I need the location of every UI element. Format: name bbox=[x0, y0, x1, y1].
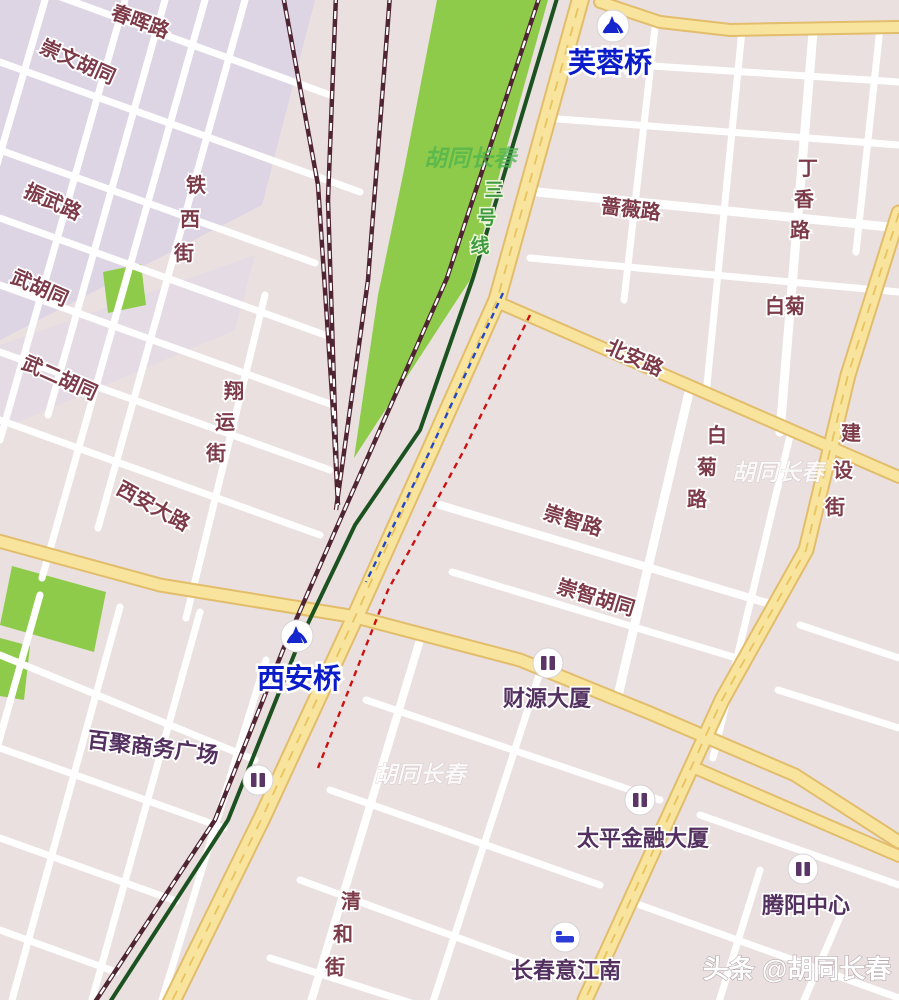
xian-bridge-icon[interactable] bbox=[281, 620, 313, 652]
baiju-plaza-icon[interactable] bbox=[243, 765, 273, 795]
taiping-tower-icon[interactable] bbox=[625, 785, 655, 815]
yijiangnan-hotel-icon[interactable] bbox=[550, 922, 580, 952]
tengyang-center-icon[interactable] bbox=[788, 854, 818, 884]
watermark-byline: 头条 @胡同长春 bbox=[703, 954, 892, 984]
furong-bridge-icon[interactable] bbox=[597, 10, 629, 42]
road-label-baiju: 白菊 bbox=[765, 294, 805, 318]
watermark-2: 胡同长春 bbox=[732, 459, 827, 485]
watermark-1: 胡同长春 bbox=[424, 145, 519, 171]
map-canvas[interactable]: 春晖路 崇文胡同 振武路 武胡同 武二胡同 西安大路 北安路 蔷薇路 白菊 崇智… bbox=[0, 0, 899, 1000]
poi-label-tengyang[interactable]: 腾阳中心 bbox=[762, 893, 850, 918]
poi-label-caiyuan[interactable]: 财源大厦 bbox=[503, 686, 591, 711]
bridge-label-furong[interactable]: 芙蓉桥 bbox=[568, 47, 652, 78]
bridge-label-xian[interactable]: 西安桥 bbox=[257, 663, 341, 694]
caiyuan-tower-icon[interactable] bbox=[533, 648, 563, 678]
map-viewport[interactable]: 春晖路 崇文胡同 振武路 武胡同 武二胡同 西安大路 北安路 蔷薇路 白菊 崇智… bbox=[0, 0, 899, 1000]
watermark-3: 胡同长春 bbox=[374, 761, 469, 787]
poi-label-yijiangnan[interactable]: 长春意江南 bbox=[511, 958, 621, 983]
poi-label-taiping[interactable]: 太平金融大厦 bbox=[577, 826, 709, 851]
